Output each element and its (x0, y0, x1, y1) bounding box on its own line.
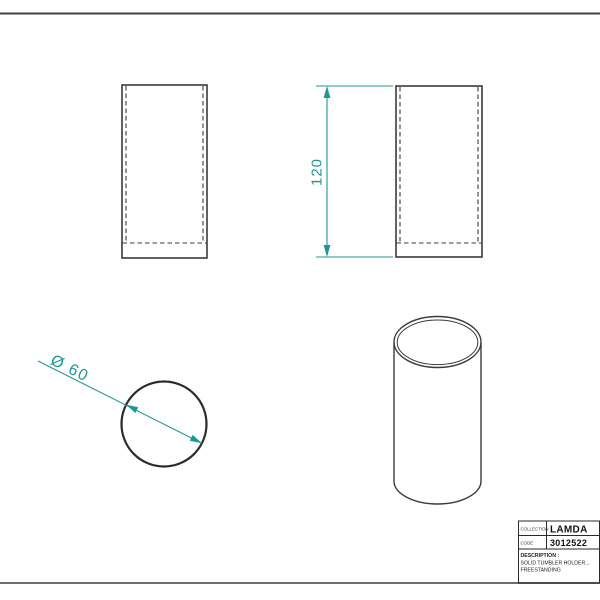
collection-label: COLLECTION (521, 527, 549, 532)
side-view-outline (396, 86, 482, 257)
side-view (396, 86, 482, 257)
cylinder-top-rim-outer (394, 317, 481, 368)
arrow-upper-left-icon (126, 405, 138, 413)
code-label: CODE (521, 541, 534, 546)
technical-drawing-canvas: 120 Ø 60 COLLECTION LAMDA CODE 3012522 D… (0, 0, 600, 600)
description-line-2: FREESTANDING (521, 568, 561, 574)
code-value: 3012522 (550, 538, 587, 548)
cylinder-top-rim-inner (397, 320, 478, 365)
arrow-lower-right-icon (190, 435, 202, 443)
drawing-svg: 120 Ø 60 COLLECTION LAMDA CODE 3012522 D… (0, 0, 600, 600)
arrow-down-icon (324, 245, 331, 257)
isometric-view (394, 317, 481, 505)
description-label: DESCRIPTION : (521, 553, 560, 559)
front-view (122, 85, 207, 258)
diameter-dimension-label: Ø 60 (48, 352, 92, 386)
arrow-up-icon (324, 86, 331, 98)
sheet-frame (0, 14, 600, 584)
diameter-dimension: Ø 60 (38, 352, 202, 443)
front-view-outline (122, 85, 207, 258)
description-line-1: SOLID TUMBLER HOLDER... (521, 561, 590, 567)
cylinder-bottom-arc (394, 481, 481, 504)
height-dimension: 120 (309, 86, 394, 257)
collection-value: LAMDA (550, 525, 588, 536)
height-dimension-label: 120 (309, 158, 326, 186)
title-block: COLLECTION LAMDA CODE 3012522 DESCRIPTIO… (519, 521, 600, 583)
